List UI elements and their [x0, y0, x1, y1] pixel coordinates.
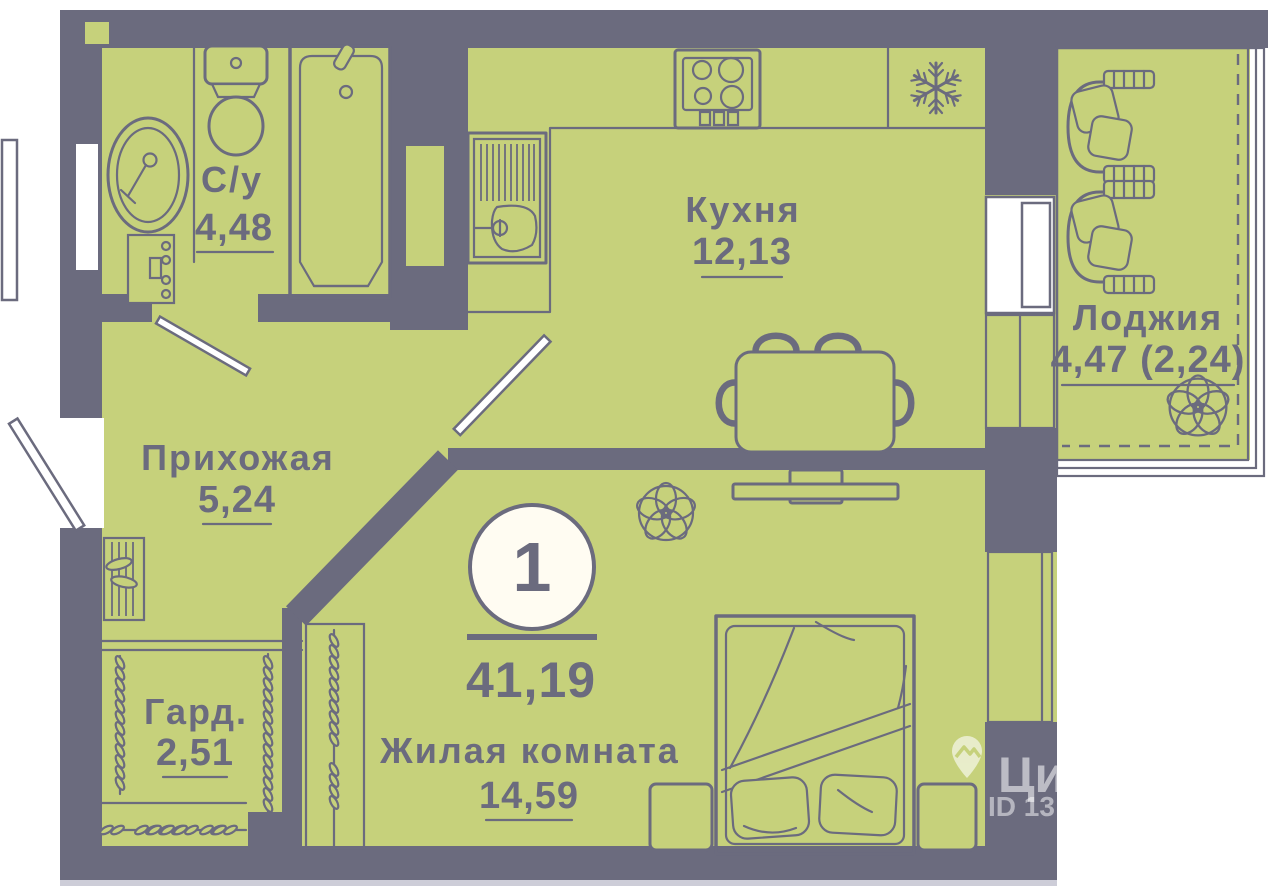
room-area-wardrobe: 2,51	[156, 732, 234, 774]
wall-bottom	[60, 846, 1057, 880]
wall-niche	[406, 146, 444, 266]
wall-balcony-upper	[985, 48, 1057, 195]
nightstand-icon	[918, 784, 976, 850]
shoe-cabinet-icon	[104, 538, 144, 620]
pillow	[730, 776, 810, 839]
balcony-window	[986, 315, 1054, 428]
room-area-loggia: 4,47 (2,24)	[1051, 339, 1246, 381]
floor-plan-page: С/у 4,48 Кухня 12,13 Лоджия 4,47 (2,24) …	[0, 0, 1280, 890]
kitchen-sink-icon	[468, 133, 546, 263]
floor-plan-canvas: С/у 4,48 Кухня 12,13 Лоджия 4,47 (2,24) …	[0, 0, 1280, 890]
room-name-wardrobe: Гард.	[144, 691, 248, 732]
wall-corner-block	[248, 812, 302, 880]
badge-room-count: 1	[513, 528, 552, 606]
dining-table-icon	[719, 336, 912, 452]
room-name-loggia: Лоджия	[1073, 297, 1223, 338]
room-name-living: Жилая комната	[379, 730, 680, 771]
room-name-kitchen: Кухня	[685, 189, 800, 230]
room-name-bathroom: С/у	[201, 159, 263, 200]
room-area-living: 14,59	[479, 775, 579, 817]
nightstand-icon	[650, 784, 712, 850]
wall-slot	[76, 144, 98, 270]
stove-icon	[675, 50, 760, 128]
unit-badge: 1 41,19	[466, 505, 597, 708]
watermark-id: ID 13	[988, 791, 1055, 822]
room-area-hallway: 5,24	[198, 479, 276, 521]
room-area-kitchen: 12,13	[692, 231, 792, 273]
balcony-door-panel	[1022, 203, 1050, 307]
vent-shaft	[85, 22, 109, 44]
plan-shadow	[60, 880, 1057, 886]
room-name-hallway: Прихожая	[141, 437, 335, 478]
exterior-shaft	[2, 140, 17, 300]
room-area-bathroom: 4,48	[195, 207, 273, 249]
bathroom-sink-icon	[108, 118, 188, 232]
living-room-window	[985, 552, 1057, 722]
towel-rail-icon	[128, 235, 174, 303]
badge-total-area: 41,19	[466, 652, 596, 708]
wall-top	[60, 10, 1268, 48]
